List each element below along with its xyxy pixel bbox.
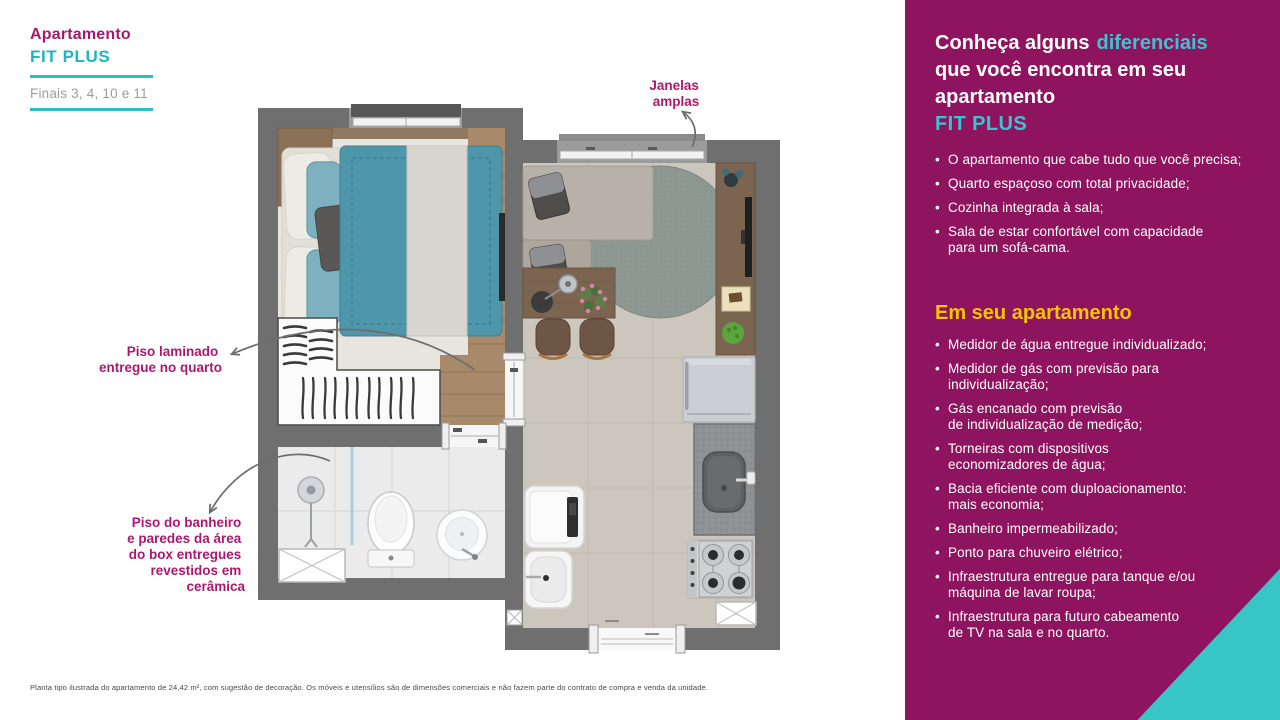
kitchen-counter bbox=[694, 424, 755, 535]
info-panel: Conheça algunsdiferenciais que você enco… bbox=[905, 0, 1280, 720]
bed-runner bbox=[407, 146, 467, 336]
panel-title-line2: que você encontra em seu bbox=[935, 57, 1264, 84]
bedroom-tv bbox=[499, 213, 505, 301]
stove bbox=[688, 540, 753, 598]
feature-item: Cozinha integrada à sala; bbox=[935, 200, 1264, 216]
kitchen-shaft-box bbox=[716, 602, 756, 625]
panel-title-line4: FIT PLUS bbox=[935, 111, 1264, 138]
annotation-windows: Janelas amplas bbox=[649, 78, 702, 109]
footnote: Planta tipo ilustrada do apartamento de … bbox=[30, 683, 890, 692]
bed bbox=[282, 146, 502, 336]
panel-title-line3: apartamento bbox=[935, 84, 1264, 111]
features-list: O apartamento que cabe tudo que você pre… bbox=[935, 152, 1264, 256]
washing-machine bbox=[525, 486, 584, 548]
bathroom-sink bbox=[437, 510, 487, 560]
apartment-item: Banheiro impermeabilizado; bbox=[935, 521, 1264, 537]
feature-item: O apartamento que cabe tudo que você pre… bbox=[935, 152, 1264, 168]
panel-title-accent: diferenciais bbox=[1096, 32, 1207, 54]
apartment-item: Torneiras com dispositivos economizadore… bbox=[935, 441, 1264, 473]
toilet bbox=[368, 492, 414, 567]
panel-title-part1: Conheça alguns bbox=[935, 32, 1089, 54]
annotation-bathroom: Piso do banheiro e paredes da área do bo… bbox=[127, 515, 245, 594]
feature-item: Quarto espaçoso com total privacidade; bbox=[935, 176, 1264, 192]
apartment-item: Bacia eficiente com duploacionamento: ma… bbox=[935, 481, 1264, 513]
living-tv bbox=[745, 197, 752, 277]
bathroom-shaft-box bbox=[279, 549, 345, 582]
floor-plan bbox=[258, 104, 780, 653]
bathroom-door bbox=[442, 423, 506, 449]
desk bbox=[523, 268, 615, 318]
apartment-item: Medidor de água entregue individualizado… bbox=[935, 337, 1264, 353]
annotation-laminate: Piso laminado entregue no quarto bbox=[99, 344, 222, 375]
living-window bbox=[557, 134, 707, 163]
apartment-item: Infraestrutura entregue para tanque e/ou… bbox=[935, 569, 1264, 601]
page: Apartamento FIT PLUS Finais 3, 4, 10 e 1… bbox=[0, 0, 1280, 720]
apartment-item: Gás encanado com previsão de individuali… bbox=[935, 401, 1264, 433]
laundry-tank bbox=[525, 551, 572, 608]
apartment-item: Medidor de gás com previsão para individ… bbox=[935, 361, 1264, 393]
panel-title: Conheça algunsdiferenciais que você enco… bbox=[935, 30, 1264, 138]
wall-shaft-marker bbox=[507, 610, 522, 625]
apartment-item: Ponto para chuveiro elétrico; bbox=[935, 545, 1264, 561]
green-plant bbox=[722, 322, 744, 344]
bedroom-window bbox=[349, 104, 462, 128]
floor-plan-svg: Janelas amplas Piso laminado entregue no… bbox=[0, 0, 905, 720]
tv-sideboard bbox=[716, 163, 755, 355]
apartment-item: Infraestrutura para futuro cabeamento de… bbox=[935, 609, 1264, 641]
fridge bbox=[683, 357, 755, 422]
section-title: Em seu apartamento bbox=[935, 302, 1264, 325]
apartment-items-list: Medidor de água entregue individualizado… bbox=[935, 337, 1264, 641]
hall-living-door bbox=[503, 353, 525, 426]
feature-item: Sala de estar confortável com capacidade… bbox=[935, 224, 1264, 256]
